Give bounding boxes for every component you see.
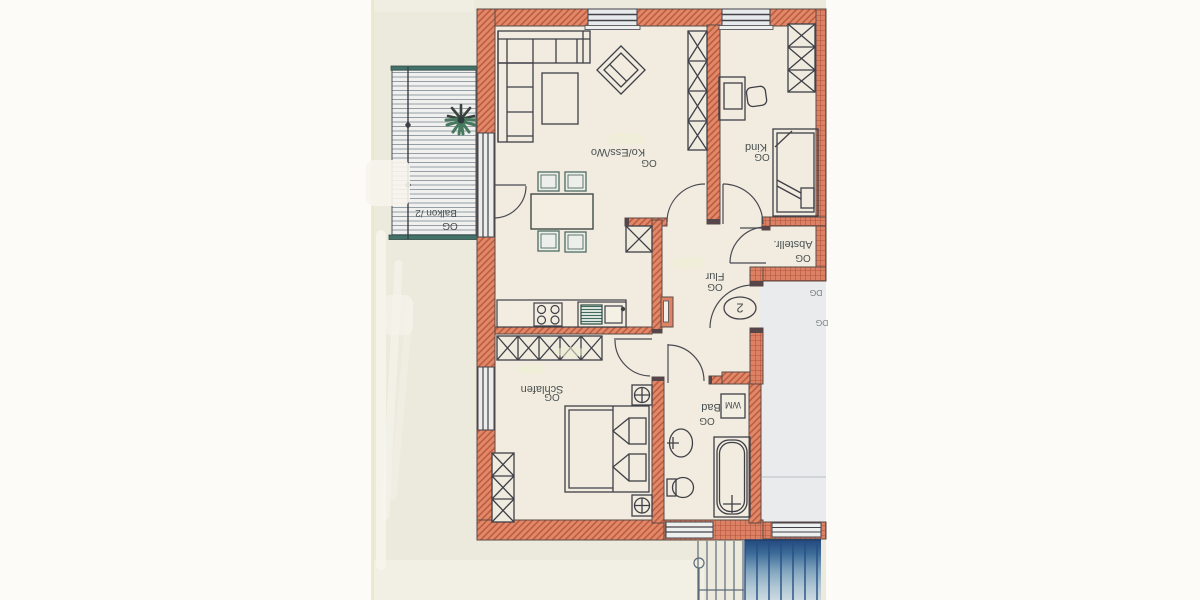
svg-text:2: 2 [736,301,743,316]
svg-text:OG: OG [754,151,770,162]
svg-text:DG: DG [810,288,823,298]
svg-text:Ko/Ess/Wo: Ko/Ess/Wo [591,146,645,158]
svg-text:Flur: Flur [705,270,724,282]
svg-text:OG: OG [795,252,811,263]
svg-text:Balkon /2: Balkon /2 [415,207,457,218]
svg-text:OG: OG [707,281,723,292]
svg-text:OG: OG [641,157,657,168]
svg-text:Abstellr.: Abstellr. [773,238,812,250]
svg-text:Bad: Bad [701,401,721,413]
svg-text:WM: WM [725,400,741,410]
svg-text:DG: DG [816,318,829,328]
svg-text:OG: OG [544,391,560,402]
svg-text:OG: OG [699,415,715,426]
svg-text:OG: OG [442,220,458,231]
